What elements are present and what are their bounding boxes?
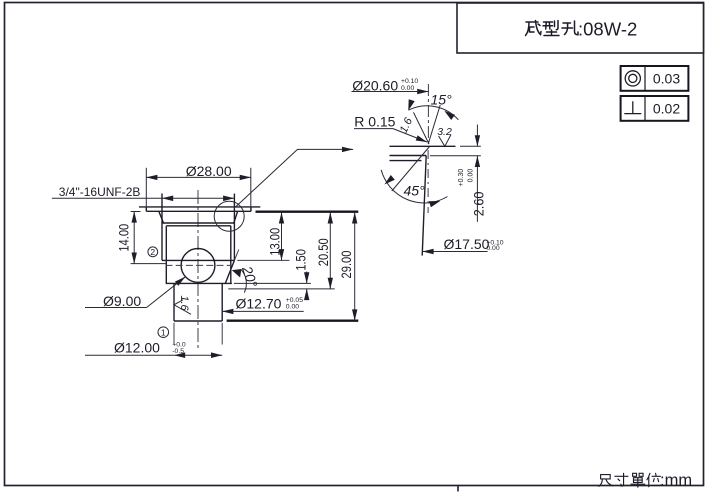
svg-text:+0.10: +0.10 — [401, 78, 418, 85]
svg-text:+0.30: +0.30 — [458, 169, 465, 187]
svg-text:0.00: 0.00 — [401, 85, 414, 92]
svg-text:1.50: 1.50 — [292, 249, 308, 271]
svg-text:Ø28.00: Ø28.00 — [186, 163, 232, 179]
svg-text::mm: :mm — [660, 472, 692, 490]
svg-text::08W-2: :08W-2 — [578, 19, 637, 40]
svg-text:Ø20.60: Ø20.60 — [352, 77, 398, 93]
svg-text:20.50: 20.50 — [315, 238, 331, 266]
svg-text:Ø9.00: Ø9.00 — [103, 293, 141, 309]
svg-text:45°: 45° — [404, 182, 426, 198]
svg-text:1.6: 1.6 — [178, 295, 190, 311]
svg-text:29.00: 29.00 — [338, 250, 354, 278]
svg-text:Ø12.70: Ø12.70 — [236, 296, 282, 312]
svg-text:0.00: 0.00 — [486, 245, 499, 252]
svg-text:Ø17.50: Ø17.50 — [444, 236, 490, 252]
svg-text:2.60: 2.60 — [470, 191, 486, 216]
svg-text:-0.5: -0.5 — [172, 348, 184, 355]
svg-text:15°: 15° — [431, 91, 453, 107]
svg-text:Ø12.00: Ø12.00 — [114, 340, 160, 356]
svg-text:R 0.15: R 0.15 — [354, 114, 395, 130]
svg-text:14.00: 14.00 — [115, 224, 131, 252]
svg-text:0.00: 0.00 — [286, 303, 299, 310]
svg-text:1: 1 — [161, 328, 166, 338]
svg-text:0.02: 0.02 — [653, 100, 680, 116]
svg-text:3/4"-16UNF-2B: 3/4"-16UNF-2B — [59, 185, 141, 199]
svg-text:2: 2 — [150, 247, 155, 257]
svg-text:0.00: 0.00 — [467, 169, 474, 183]
svg-text:0.03: 0.03 — [653, 70, 680, 86]
svg-text:13.00: 13.00 — [267, 228, 283, 256]
